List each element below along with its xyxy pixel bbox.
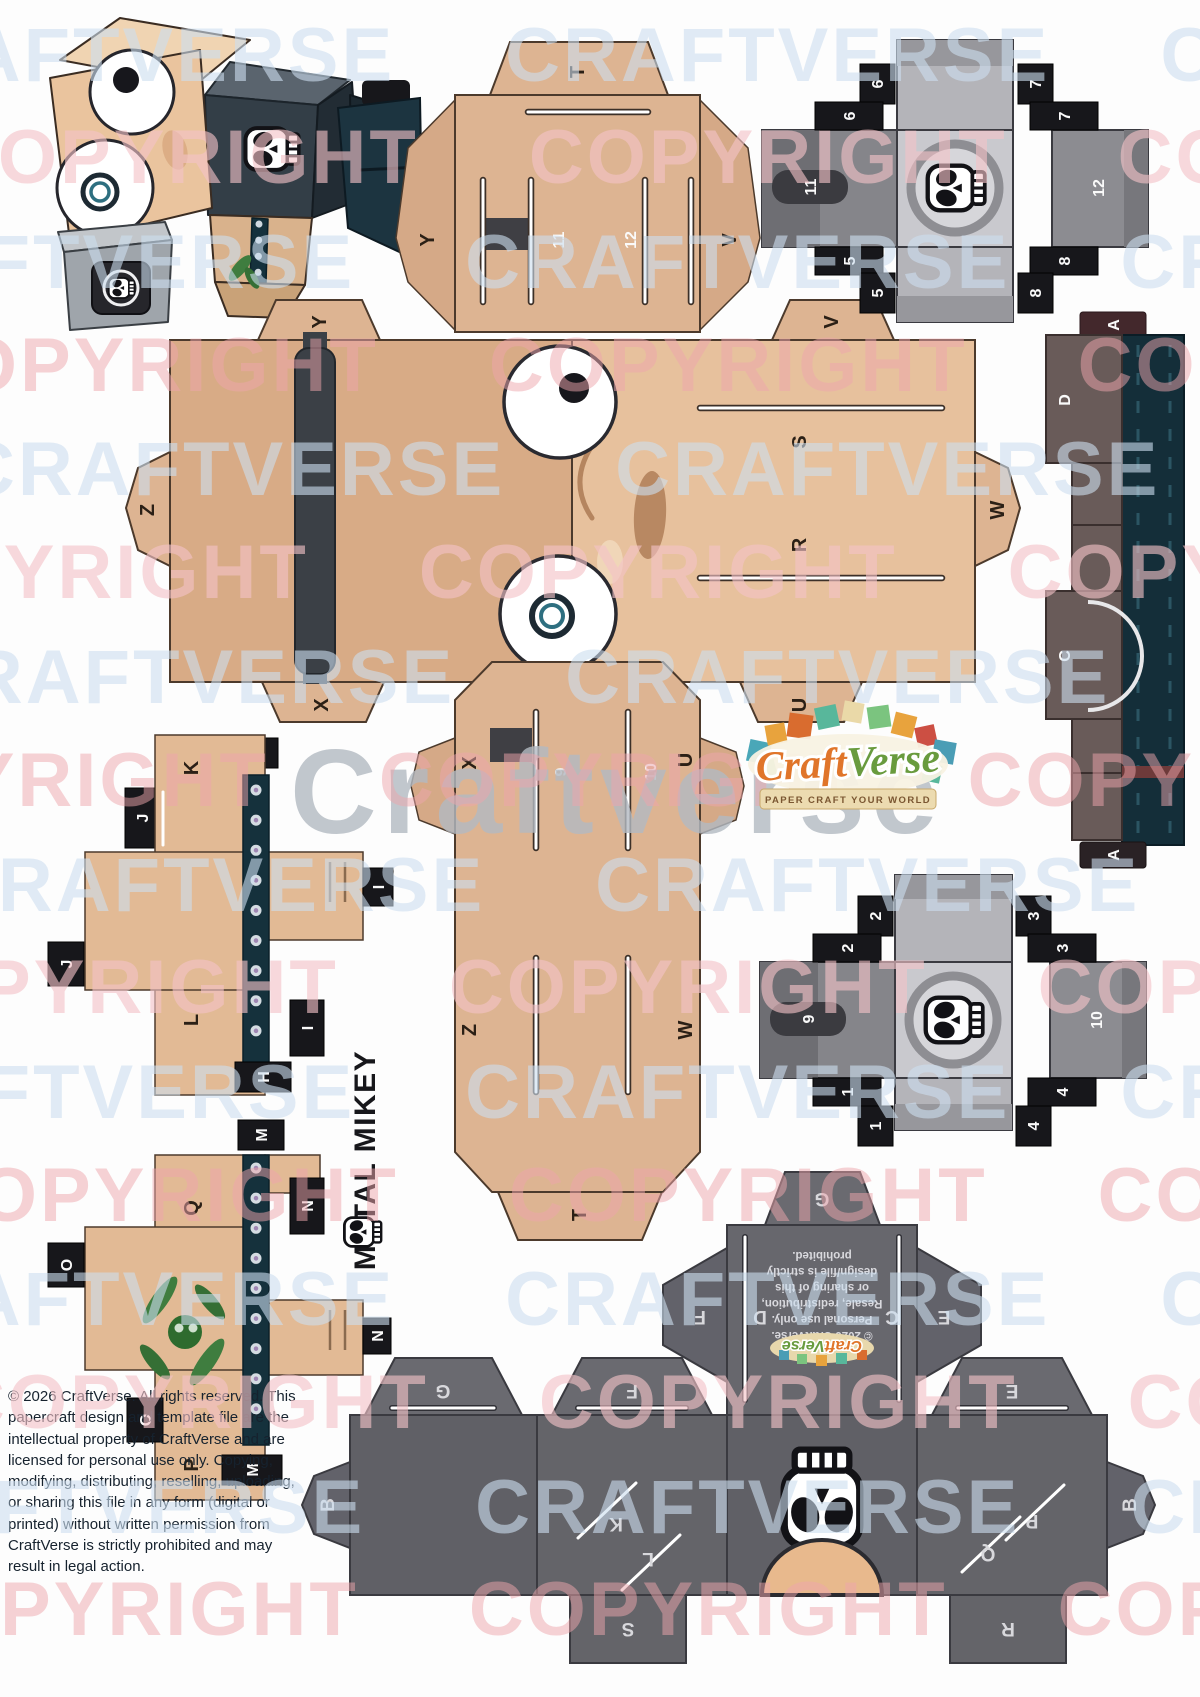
tab-label-v: V	[719, 233, 741, 247]
tab-label-b: B	[318, 1498, 339, 1512]
ext-label-s: S	[622, 1618, 635, 1639]
svg-text:5: 5	[842, 256, 859, 265]
svg-text:3: 3	[1026, 911, 1043, 920]
face-label-10: 10	[1089, 1011, 1106, 1029]
slit-label-s: S	[789, 435, 811, 448]
slot-label: 11	[803, 178, 820, 195]
piece-head-band: X 9 10 U Z W T	[411, 662, 744, 1240]
label-c: C	[1057, 650, 1074, 662]
svg-text:5: 5	[870, 288, 887, 297]
craftverse-logo: CraftVerse PAPER CRAFT YOUR WORLD	[728, 686, 968, 821]
slit-label-r: R	[789, 537, 811, 552]
svg-text:Resale, redistribution,: Resale, redistribution,	[762, 1297, 883, 1309]
label-z: Z	[459, 1024, 481, 1036]
label-x: X	[459, 756, 481, 770]
flap-label-e: E	[938, 1306, 951, 1327]
slit-label-k: K	[609, 1513, 623, 1534]
slot-label-10: 10	[643, 763, 660, 781]
slit-label-q: Q	[981, 1543, 996, 1564]
label-q: Q	[181, 1200, 203, 1216]
svg-text:1: 1	[868, 1121, 885, 1130]
svg-text:or sharing of this: or sharing of this	[775, 1281, 869, 1293]
logo-wordmark: CraftVerse	[755, 735, 942, 791]
svg-text:7: 7	[1028, 79, 1045, 88]
label-w: W	[675, 1020, 697, 1039]
eye-print	[504, 346, 616, 458]
svg-text:H: H	[256, 1071, 273, 1083]
tab-label-a: A	[1106, 849, 1123, 861]
svg-text:design/file is strictly: design/file is strictly	[766, 1265, 877, 1277]
svg-text:6: 6	[870, 79, 887, 88]
flap-label-f: F	[694, 1306, 706, 1327]
preview-skull-badge-icon	[245, 128, 298, 170]
slot-label-11: 11	[551, 231, 568, 248]
brand-skull-icon	[344, 1218, 381, 1247]
tab-label-z: Z	[137, 504, 159, 516]
slot-label: 9	[801, 1014, 818, 1023]
copyright-notice: © 2026 CraftVerse. All rights reserved. …	[8, 1386, 302, 1578]
tab-label-t: T	[569, 1209, 591, 1221]
flap-label-e: E	[1006, 1380, 1019, 1401]
label-l: L	[181, 1014, 203, 1026]
flap-label-f: F	[626, 1380, 638, 1401]
svg-text:4: 4	[1055, 1087, 1072, 1096]
piece-head-top: T Y V 11 12	[396, 42, 760, 332]
tab-label-a: A	[1106, 319, 1123, 331]
eye-print	[500, 556, 616, 672]
slot-label-9: 9	[553, 767, 570, 776]
tab-label-g: G	[815, 1188, 830, 1209]
slot-label-12: 12	[623, 231, 640, 249]
tab-label-b: B	[1120, 1498, 1141, 1512]
svg-text:8: 8	[1057, 256, 1074, 265]
label-k: K	[181, 760, 203, 775]
slit-label-l: L	[642, 1548, 654, 1569]
svg-text:2: 2	[840, 943, 857, 952]
skull-icon	[784, 1450, 860, 1547]
tab-label-x: X	[311, 698, 333, 712]
svg-text:6: 6	[842, 111, 859, 120]
logo-tagline: PAPER CRAFT YOUR WORLD	[765, 795, 931, 806]
preview-eye	[57, 140, 153, 236]
svg-text:Personal use only.: Personal use only.	[772, 1313, 873, 1325]
svg-text:prohibited.: prohibited.	[792, 1249, 851, 1261]
svg-text:3: 3	[1055, 943, 1072, 952]
face-label-12: 12	[1091, 179, 1108, 197]
svg-text:I: I	[300, 1026, 317, 1030]
svg-text:J: J	[59, 960, 76, 969]
label-d: D	[1057, 394, 1074, 406]
skull-icon	[926, 998, 983, 1043]
label-c: C	[885, 1306, 899, 1327]
svg-text:2: 2	[868, 911, 885, 920]
skull-icon	[928, 166, 985, 211]
label-u: U	[675, 753, 697, 767]
flap-label-g: G	[436, 1380, 451, 1401]
svg-text:7: 7	[1057, 111, 1074, 120]
svg-text:M: M	[254, 1128, 271, 1141]
svg-text:J: J	[135, 814, 152, 823]
svg-text:8: 8	[1028, 288, 1045, 297]
tab-label-v: V	[821, 315, 843, 329]
svg-text:4: 4	[1026, 1121, 1043, 1130]
piece-strip: A D C A	[1046, 312, 1184, 868]
svg-text:I: I	[371, 885, 388, 889]
svg-text:N: N	[300, 1200, 317, 1212]
svg-text:O: O	[59, 1259, 76, 1271]
mohawk-print	[295, 348, 335, 674]
slit-label-p: P	[1025, 1510, 1038, 1531]
piece-cube-lower: 2 2 3 3 1 1 4 4 9 10	[760, 875, 1146, 1146]
tab-label-y: Y	[417, 233, 439, 247]
svg-text:CraftVerse: CraftVerse	[782, 1337, 862, 1354]
tab-label-w: W	[987, 500, 1009, 519]
ext-label-r: R	[1001, 1618, 1015, 1639]
tab-label-y: Y	[309, 315, 331, 329]
svg-text:1: 1	[840, 1087, 857, 1096]
tab-label-t: T	[567, 66, 589, 78]
preview-eye	[90, 50, 174, 134]
svg-text:N: N	[370, 1330, 387, 1342]
assembled-preview-illustration	[50, 18, 392, 330]
piece-body-box: G F E D C © 2026 CraftVerse. Personal us…	[302, 1172, 1155, 1663]
papercraft-template-sheet: T Y V 11 12	[0, 0, 1200, 1697]
piece-face: Y Z X V U W S R	[126, 300, 1020, 722]
piece-arm-upper: H J J I I H K L	[48, 735, 393, 1095]
preview-mini-skull-icon	[109, 278, 135, 298]
piece-cube-upper: 6 6 7 7 5 5 8 8 11 12	[762, 40, 1148, 322]
